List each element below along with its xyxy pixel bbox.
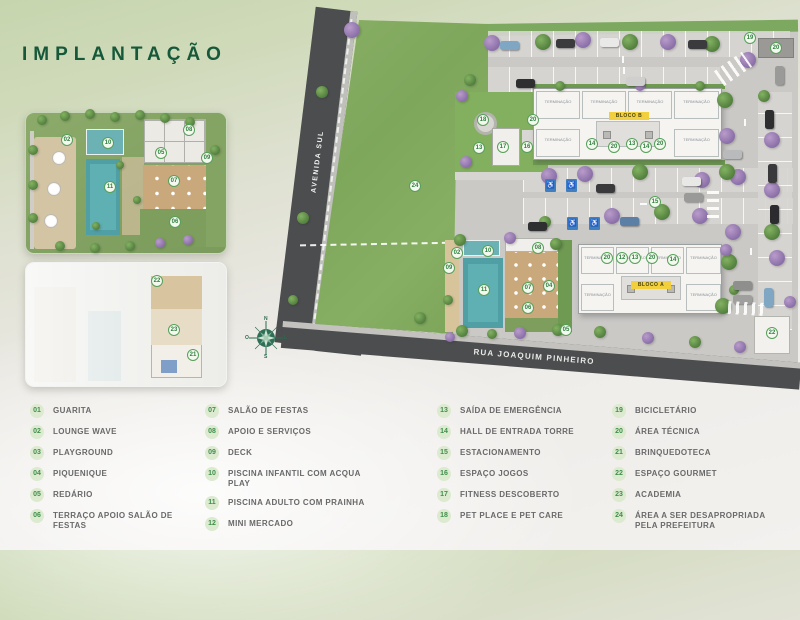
adult-pool xyxy=(463,258,503,328)
inset-sand-deck xyxy=(34,137,76,249)
legend-item-number: 22 xyxy=(612,467,626,481)
legend-item-label: PLAYGROUND xyxy=(53,446,113,458)
unit-cell: TERMINAÇÃO xyxy=(674,129,719,157)
legend-item-label: REDÁRIO xyxy=(53,488,93,500)
legend-item-03: 03PLAYGROUND xyxy=(30,446,205,460)
legend-item-label: SAÍDA DE EMERGÊNCIA xyxy=(460,404,562,416)
legend-item-23: 23ACADEMIA xyxy=(612,488,800,502)
legend-item-14: 14HALL DE ENTRADA TORRE xyxy=(437,425,612,439)
bloco-a-label: BLOCO A xyxy=(631,281,671,289)
bloco-b-footprint: TERMINAÇÃO TERMINAÇÃO TERMINAÇÃO TERMINA… xyxy=(533,88,722,160)
legend-item-label: BRINQUEDOTECA xyxy=(635,446,711,458)
legend-item-09: 09DECK xyxy=(205,446,437,460)
deck-strip xyxy=(445,240,459,332)
legend-item-label: PIQUENIQUE xyxy=(53,467,107,479)
legend-item-number: 17 xyxy=(437,488,451,502)
unit-cell: TERMINAÇÃO xyxy=(536,129,580,157)
legend-item-number: 15 xyxy=(437,446,451,460)
legend-item-label: ESTACIONAMENTO xyxy=(460,446,541,458)
legend-item-16: 16ESPAÇO JOGOS xyxy=(437,467,612,481)
legend-item-label: FITNESS DESCOBERTO xyxy=(460,488,560,500)
inset2-gourmet-room xyxy=(151,276,202,309)
legend-item-label: APOIO E SERVIÇOS xyxy=(228,425,311,437)
legend-item-label: LOUNGE WAVE xyxy=(53,425,117,437)
kids-pool xyxy=(463,240,500,256)
inset2-academy-room xyxy=(151,309,202,345)
unit-cell: TERMINAÇÃO xyxy=(686,247,721,274)
block-core xyxy=(596,121,660,147)
legend-item-06: 06TERRAÇO APOIO SALÃO DE FESTAS xyxy=(30,509,205,523)
legend-column: 01GUARITA02LOUNGE WAVE03PLAYGROUND04PIQU… xyxy=(30,404,205,538)
legend-item-01: 01GUARITA xyxy=(30,404,205,418)
legend-item-label: DECK xyxy=(228,446,252,458)
legend-item-number: 14 xyxy=(437,425,451,439)
legend-item-number: 20 xyxy=(612,425,626,439)
unit-cell: TERMINAÇÃO xyxy=(536,91,580,119)
legend-item-number: 02 xyxy=(30,425,44,439)
inset-garden xyxy=(140,209,206,247)
legend-item-02: 02LOUNGE WAVE xyxy=(30,425,205,439)
hedge-below-bloco-b xyxy=(533,160,725,165)
legend-item-number: 11 xyxy=(205,496,219,510)
legend-item-number: 24 xyxy=(612,509,626,523)
compass-west-label: O xyxy=(245,335,249,341)
legend-item-19: 19BICICLETÁRIO xyxy=(612,404,800,418)
unit-cell: TERMINAÇÃO xyxy=(616,247,649,274)
unit-cell: TERMINAÇÃO xyxy=(581,247,614,274)
legend-column: 07SALÃO DE FESTAS08APOIO E SERVIÇOS09DEC… xyxy=(205,404,437,538)
unit-cell: TERMINAÇÃO xyxy=(581,284,614,311)
legend-item-number: 06 xyxy=(30,509,44,523)
legend-item-label: ÁREA A SER DESAPROPRIADA PELA PREFEITURA xyxy=(635,509,787,531)
legend-item-number: 05 xyxy=(30,488,44,502)
legend-item-10: 10PISCINA INFANTIL COM ACQUA PLAY xyxy=(205,467,437,489)
gourmet-building xyxy=(754,316,790,354)
legend-item-label: HALL DE ENTRADA TORRE xyxy=(460,425,574,437)
legend-item-24: 24ÁREA A SER DESAPROPRIADA PELA PREFEITU… xyxy=(612,509,800,531)
legend-item-22: 22ESPAÇO GOURMET xyxy=(612,467,800,481)
unit-cell: TERMINAÇÃO xyxy=(651,247,684,274)
legend-item-label: TERRAÇO APOIO SALÃO DE FESTAS xyxy=(53,509,205,531)
legend-item-18: 18PET PLACE E PET CARE xyxy=(437,509,612,523)
legend: 01GUARITA02LOUNGE WAVE03PLAYGROUND04PIQU… xyxy=(30,404,800,538)
legend-item-number: 19 xyxy=(612,404,626,418)
fitness-structure xyxy=(492,128,520,166)
legend-item-number: 18 xyxy=(437,509,451,523)
legend-item-number: 13 xyxy=(437,404,451,418)
bloco-b-label: BLOCO B xyxy=(609,112,649,120)
inset-party-hall-building xyxy=(144,119,206,163)
legend-item-label: ESPAÇO JOGOS xyxy=(460,467,529,479)
compass-icon: N S O L xyxy=(246,318,286,358)
legend-item-20: 20ÁREA TÉCNICA xyxy=(612,425,800,439)
street-label-avenida-sul: AVENIDA SUL xyxy=(310,126,325,196)
terrace-garden xyxy=(505,318,558,332)
legend-item-number: 01 xyxy=(30,404,44,418)
legend-item-04: 04PIQUENIQUE xyxy=(30,467,205,481)
legend-item-12: 12MINI MERCADO xyxy=(205,517,437,531)
legend-item-13: 13SAÍDA DE EMERGÊNCIA xyxy=(437,404,612,418)
legend-item-number: 04 xyxy=(30,467,44,481)
inset-green-strip xyxy=(206,119,226,247)
legend-item-number: 03 xyxy=(30,446,44,460)
inset-amenities-render xyxy=(25,112,227,254)
legend-item-number: 07 xyxy=(205,404,219,418)
amenity-hedge xyxy=(558,240,572,332)
legend-item-number: 10 xyxy=(205,467,219,481)
compass-rose xyxy=(246,318,286,358)
legend-item-label: MINI MERCADO xyxy=(228,517,293,529)
parking-strip-mid-1 xyxy=(523,168,793,192)
compass-south-label: S xyxy=(264,354,267,360)
inset-party-hall-terrace xyxy=(143,165,206,209)
compass-north-label: N xyxy=(264,316,268,322)
legend-item-number: 09 xyxy=(205,446,219,460)
support-roof xyxy=(505,238,558,252)
legend-item-label: PISCINA INFANTIL COM ACQUA PLAY xyxy=(228,467,380,489)
legend-item-number: 16 xyxy=(437,467,451,481)
legend-item-label: ACADEMIA xyxy=(635,488,681,500)
legend-item-number: 23 xyxy=(612,488,626,502)
parking-strip-mid-2 xyxy=(523,198,793,224)
legend-item-17: 17FITNESS DESCOBERTO xyxy=(437,488,612,502)
legend-item-label: ESPAÇO GOURMET xyxy=(635,467,717,479)
legend-item-number: 21 xyxy=(612,446,626,460)
legend-item-label: PISCINA ADULTO COM PRAINHA xyxy=(228,496,365,508)
inset2-playroom-mat xyxy=(161,360,177,373)
legend-item-05: 05REDÁRIO xyxy=(30,488,205,502)
legend-item-label: SALÃO DE FESTAS xyxy=(228,404,309,416)
legend-item-number: 08 xyxy=(205,425,219,439)
parking-strip-right xyxy=(758,92,792,330)
legend-item-11: 11PISCINA ADULTO COM PRAINHA xyxy=(205,496,437,510)
street-label-rua-joaquim-pinheiro: RUA JOAQUIM PINHEIRO xyxy=(473,347,595,366)
technical-area-building xyxy=(758,38,794,58)
legend-item-label: ÁREA TÉCNICA xyxy=(635,425,700,437)
inset-gourmet-render xyxy=(25,262,227,387)
legend-column: 19BICICLETÁRIO20ÁREA TÉCNICA21BRINQUEDOT… xyxy=(612,404,800,538)
parking-strip-top-1 xyxy=(465,31,790,57)
legend-item-21: 21BRINQUEDOTECA xyxy=(612,446,800,460)
legend-item-07: 07SALÃO DE FESTAS xyxy=(205,404,437,418)
bloco-a-footprint: TERMINAÇÃO TERMINAÇÃO TERMINAÇÃO TERMINA… xyxy=(578,244,722,314)
unit-cell: TERMINAÇÃO xyxy=(686,284,721,311)
legend-item-15: 15ESTACIONAMENTO xyxy=(437,446,612,460)
legend-item-08: 08APOIO E SERVIÇOS xyxy=(205,425,437,439)
legend-item-label: GUARITA xyxy=(53,404,92,416)
party-hall-floor xyxy=(505,252,558,318)
legend-column: 13SAÍDA DE EMERGÊNCIA14HALL DE ENTRADA T… xyxy=(437,404,612,538)
legend-item-label: PET PLACE E PET CARE xyxy=(460,509,563,521)
compass-east-label: L xyxy=(284,335,287,341)
legend-item-label: BICICLETÁRIO xyxy=(635,404,697,416)
legend-item-number: 12 xyxy=(205,517,219,531)
lawn-path xyxy=(455,172,548,180)
unit-cell: TERMINAÇÃO xyxy=(674,91,719,119)
inset-adult-pool xyxy=(86,159,120,235)
inset-kids-pool xyxy=(86,129,124,155)
